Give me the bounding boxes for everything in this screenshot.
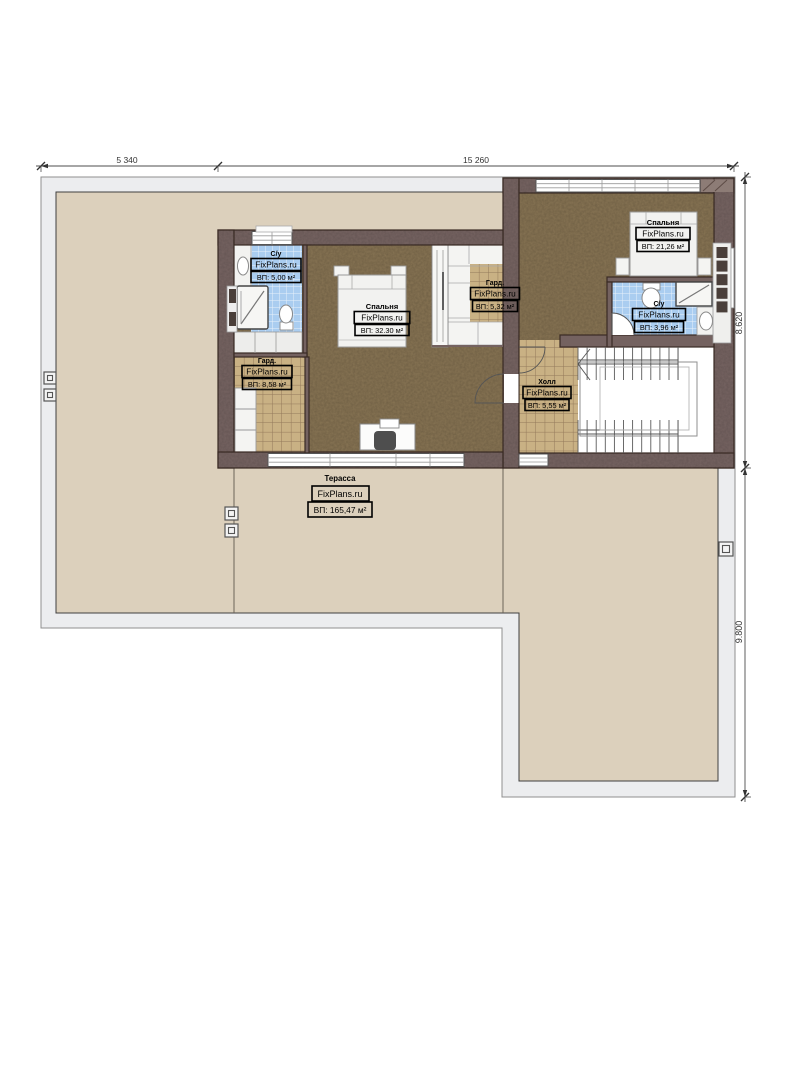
svg-text:9.800: 9.800 [734, 621, 744, 644]
svg-text:8.620: 8.620 [734, 312, 744, 335]
svg-text:15 260: 15 260 [463, 155, 489, 165]
svg-text:ВП: 5,00 м²: ВП: 5,00 м² [257, 273, 296, 282]
svg-text:FixPlans.ru: FixPlans.ru [246, 367, 288, 377]
svg-text:FixPlans.ru: FixPlans.ru [317, 489, 362, 499]
svg-text:5 340: 5 340 [116, 155, 138, 165]
svg-text:ВП: 165,47 м²: ВП: 165,47 м² [314, 505, 367, 515]
svg-text:FixPlans.ru: FixPlans.ru [255, 260, 297, 270]
svg-text:ВП: 8,58 м²: ВП: 8,58 м² [248, 380, 287, 389]
svg-text:Гард.: Гард. [486, 280, 504, 287]
svg-text:ВП: 3,96 м²: ВП: 3,96 м² [640, 323, 679, 332]
svg-text:ВП: 5,55 м²: ВП: 5,55 м² [528, 401, 567, 410]
svg-text:FixPlans.ru: FixPlans.ru [361, 313, 403, 323]
svg-text:Холл: Холл [538, 379, 556, 386]
svg-text:ВП: 21,26 м²: ВП: 21,26 м² [642, 242, 685, 251]
svg-text:Терасса: Терасса [325, 474, 357, 483]
svg-text:FixPlans.ru: FixPlans.ru [642, 229, 684, 239]
svg-text:С/у: С/у [271, 251, 282, 258]
svg-text:С/у: С/у [654, 301, 665, 308]
svg-text:ВП: 5,32 м²: ВП: 5,32 м² [476, 302, 515, 311]
svg-text:Спальня: Спальня [366, 302, 398, 311]
svg-text:FixPlans.ru: FixPlans.ru [638, 310, 680, 320]
svg-text:Гард.: Гард. [258, 358, 276, 365]
svg-text:FixPlans.ru: FixPlans.ru [474, 289, 516, 299]
svg-text:ВП: 32.30 м²: ВП: 32.30 м² [361, 326, 404, 335]
svg-text:FixPlans.ru: FixPlans.ru [526, 388, 568, 398]
svg-text:Спальня: Спальня [647, 218, 679, 227]
